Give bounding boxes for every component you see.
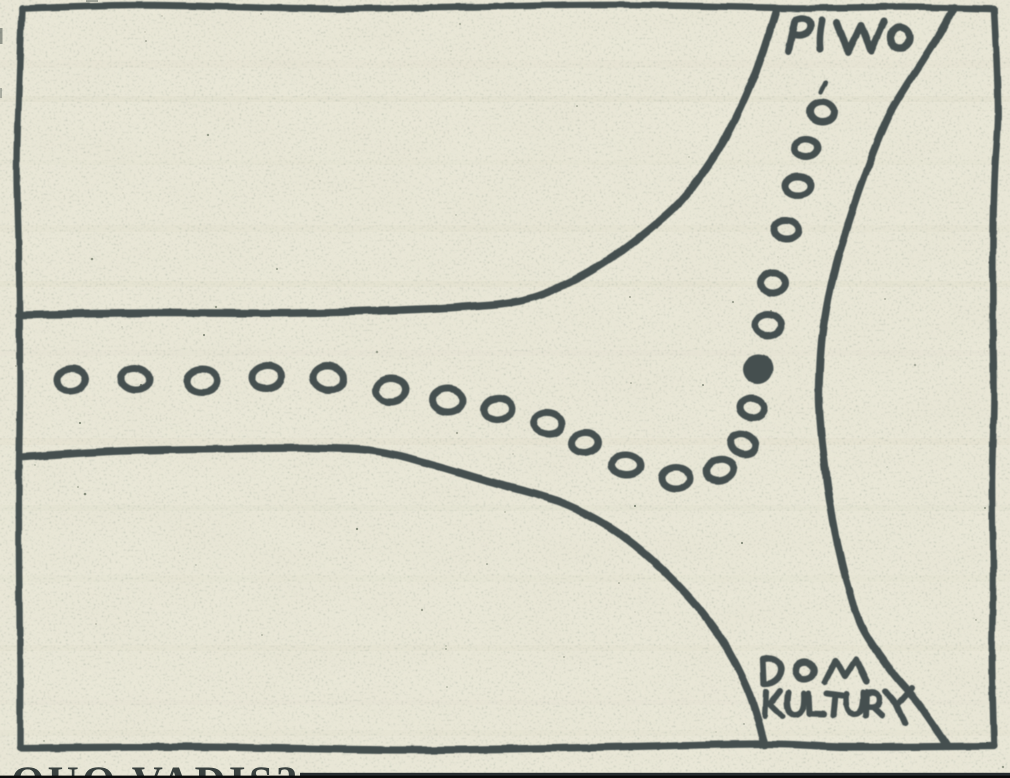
svg-text:QUO VADIS?: QUO VADIS? [11,759,301,778]
